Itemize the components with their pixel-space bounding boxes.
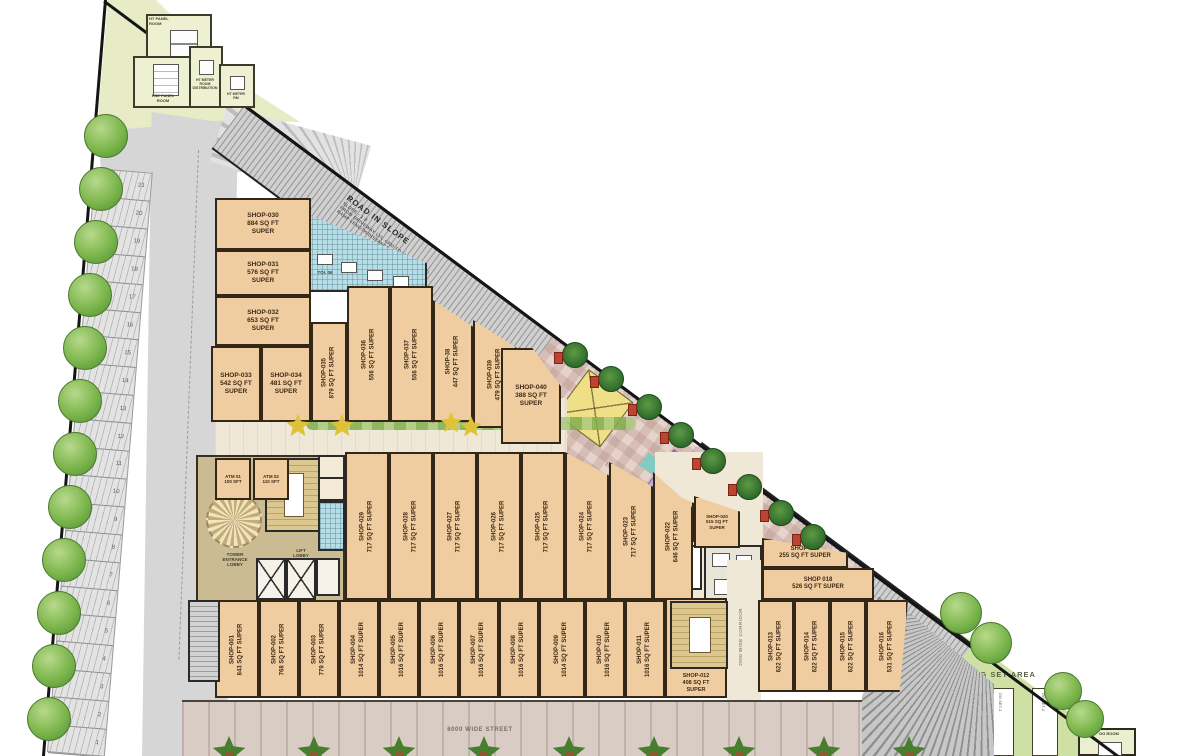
shop-003: SHOP-003779 SQ FT SUPER: [299, 600, 339, 698]
shop-031-label: SHOP-031576 SQ FTSUPER: [247, 261, 279, 285]
shop-001-label: SHOP-001843 SQ FT SUPER: [230, 623, 245, 675]
plaza-planter: [554, 352, 563, 364]
utility-room-2-label: HSE PANEL ROOM: [143, 94, 183, 103]
shop-013: SHOP-013622 SQ FT SUPER: [758, 600, 794, 692]
parking-stall-number: 9: [114, 517, 118, 523]
parking-stall-number: 16: [126, 322, 133, 329]
shaft-rooms: [318, 455, 345, 501]
dg-set-1-label: DG SET-1: [998, 693, 1003, 711]
tree-right: [970, 622, 1012, 664]
palm-pot: [565, 752, 573, 756]
palm-pot: [225, 752, 233, 756]
shop-030-label: SHOP-030884 SQ FTSUPER: [247, 212, 279, 236]
shop-036: SHOP-036556 SQ FT SUPER: [347, 286, 390, 422]
parking-stall-number: 19: [133, 239, 140, 246]
parking-stall-number: 21: [138, 183, 145, 190]
parking-stall-number: 14: [122, 378, 129, 385]
plaza-tree: [800, 524, 826, 550]
shop-002-label: SHOP-002768 SQ FT SUPER: [272, 623, 287, 675]
shop-012-stair: [670, 601, 728, 669]
parking-stall-number: 2: [98, 712, 102, 718]
shop-014-label: SHOP-014622 SQ FT SUPER: [805, 620, 820, 672]
plaza-planter: [590, 376, 599, 388]
shop-037: SHOP-037556 SQ FT SUPER: [390, 286, 433, 422]
shop-022-label: SHOP-022646 SQ FT SUPER: [666, 510, 681, 562]
shop-024-label: SHOP-024717 SQ FT SUPER: [580, 500, 595, 552]
parking-stall-number: 20: [135, 211, 142, 218]
shop-032: SHOP-032653 SQ FTSUPER: [215, 296, 311, 346]
plaza-planter: [728, 484, 737, 496]
shop-016-label: SHOP-016531 SQ FT SUPER: [880, 620, 895, 672]
parking-stall-number: 11: [115, 461, 122, 467]
shop-029: SHOP-029717 SQ FT SUPER: [345, 452, 389, 600]
shop-031: SHOP-031576 SQ FTSUPER: [215, 250, 311, 296]
shop-038-label: SHOP-38447 SQ FT SUPER: [446, 335, 461, 387]
utility-room-2: HSE PANEL ROOM: [133, 56, 193, 108]
shop-008: SHOP-0081016 SQ FT SUPER: [499, 600, 539, 698]
palm-pot: [480, 752, 488, 756]
shop-025-label: SHOP-025717 SQ FT SUPER: [536, 500, 551, 552]
lift-1: [256, 558, 286, 600]
shop-030: SHOP-030884 SQ FTSUPER: [215, 198, 311, 250]
utility-room-4: HT METER RM: [219, 64, 255, 108]
plaza-tree: [700, 448, 726, 474]
shop-018: SHOP 018526 SQ FT SUPER: [762, 568, 874, 600]
atm-2-label: ATM 02110 SFT: [262, 474, 279, 484]
shop-032-label: SHOP-032653 SQ FTSUPER: [247, 309, 279, 333]
shop-027-label: SHOP-027717 SQ FT SUPER: [448, 500, 463, 552]
atm-2: ATM 02110 SFT: [253, 458, 289, 500]
parking-stall-number: 5: [104, 628, 108, 634]
palm-pot: [650, 752, 658, 756]
plaza-tree: [668, 422, 694, 448]
shop-004: SHOP-0041014 SQ FT SUPER: [339, 600, 379, 698]
tree-left: [37, 591, 81, 635]
parking-stall-number: 6: [107, 600, 111, 606]
parking-stall-number: 8: [111, 545, 115, 551]
shop-014: SHOP-014622 SQ FT SUPER: [794, 600, 830, 692]
shop-002: SHOP-002768 SQ FT SUPER: [259, 600, 299, 698]
shop-026-label: SHOP-026717 SQ FT SUPER: [492, 500, 507, 552]
shop-011: SHOP-0111016 SQ FT SUPER: [625, 600, 665, 698]
parking-stall-number: 18: [131, 266, 138, 273]
utility-room-1-label: HT PANEL ROOM: [149, 17, 189, 26]
shop-037-label: SHOP-037556 SQ FT SUPER: [404, 328, 419, 380]
shop-005-label: SHOP-0051016 SQ FT SUPER: [392, 621, 407, 676]
shop-034-label: SHOP-034481 SQ FTSUPER: [270, 372, 302, 396]
shop-035: SHOP-035879 SQ FT SUPER: [311, 322, 347, 422]
plaza-planter: [660, 432, 669, 444]
plaza-planter: [692, 458, 701, 470]
tree-left: [79, 167, 123, 211]
plaza-tree: [636, 394, 662, 420]
shop-033: SHOP-033542 SQ FTSUPER: [211, 346, 261, 422]
utility-room-3-label: HT METER ROOM DISTRIBUTION: [191, 78, 219, 90]
shop-015-label: SHOP-015622 SQ FT SUPER: [841, 620, 856, 672]
plaza-planter: [628, 404, 637, 416]
shop-003-label: SHOP-003779 SQ FT SUPER: [312, 623, 327, 675]
atm-1: ATM 01100 SFT: [215, 458, 251, 500]
shop-036-label: SHOP-036556 SQ FT SUPER: [361, 328, 376, 380]
palm-pot: [905, 752, 913, 756]
tree-left: [58, 379, 102, 423]
parking-stall-number: 17: [129, 294, 136, 301]
tree-right: [1066, 700, 1104, 738]
shop-028-label: SHOP-028717 SQ FT SUPER: [404, 500, 419, 552]
tree-left: [27, 697, 71, 741]
shop-012-label: SHOP-012408 SQ FTSUPER: [683, 673, 710, 694]
tree-left: [53, 432, 97, 476]
shop-010: SHOP-0101016 SQ FT SUPER: [585, 600, 625, 698]
utility-room-4-label: HT METER RM: [223, 92, 249, 100]
parking-stall-number: 13: [119, 406, 126, 413]
shop-009: SHOP-0091014 SQ FT SUPER: [539, 600, 585, 698]
shop-018-label: SHOP 018526 SQ FT SUPER: [792, 577, 844, 592]
plaza-planter: [760, 510, 769, 522]
shop-009-label: SHOP-0091014 SQ FT SUPER: [555, 621, 570, 676]
plaza-tree: [598, 366, 624, 392]
tree-left: [74, 220, 118, 264]
tree-left: [48, 485, 92, 529]
shop-025: SHOP-025717 SQ FT SUPER: [521, 452, 565, 600]
plaza-tree: [768, 500, 794, 526]
palm-pot: [310, 752, 318, 756]
parking-stall-number: 15: [124, 350, 131, 357]
shop-020-label: SHOP-020515 SQ FTSUPER: [706, 514, 728, 530]
escalator: [188, 600, 220, 682]
shop-040-label: SHOP-040388 SQ FTSUPER: [515, 384, 547, 408]
palm-pot: [820, 752, 828, 756]
lift-2: [286, 558, 316, 600]
shop-008-label: SHOP-0081016 SQ FT SUPER: [512, 621, 527, 676]
shop-004-label: SHOP-0041014 SQ FT SUPER: [352, 621, 367, 676]
tree-left: [32, 644, 76, 688]
tree-left: [63, 326, 107, 370]
shop-011-label: SHOP-0111016 SQ FT SUPER: [638, 621, 653, 676]
shop-023-label: SHOP-023717 SQ FT SUPER: [624, 505, 639, 557]
plaza-tree: [736, 474, 762, 500]
shop-013-label: SHOP-013622 SQ FT SUPER: [769, 620, 784, 672]
shop-001: SHOP-001843 SQ FT SUPER: [215, 600, 259, 698]
shop-027: SHOP-027717 SQ FT SUPER: [433, 452, 477, 600]
parking-stall-number: 12: [117, 433, 124, 440]
parking-stall-number: 10: [113, 489, 120, 496]
shop-039-label: SHOP-039479 SQ FT SUPER: [488, 348, 503, 400]
lift-lobby-label: LIFT LOBBY: [284, 548, 318, 558]
floor-plan: 6000 WIDE STREET DG SET AREA DG SET-1 DG…: [0, 0, 1200, 756]
shop-006-label: SHOP-0061016 SQ FT SUPER: [432, 621, 447, 676]
shop-010-label: SHOP-0101016 SQ FT SUPER: [598, 621, 613, 676]
shop-006: SHOP-0061016 SQ FT SUPER: [419, 600, 459, 698]
palm-pot: [395, 752, 403, 756]
shop-015: SHOP-015622 SQ FT SUPER: [830, 600, 866, 692]
bottom-street-label: 6000 WIDE STREET: [420, 727, 540, 735]
parking-stall-number: 7: [109, 573, 113, 579]
shop-035-label: SHOP-035879 SQ FT SUPER: [322, 346, 337, 398]
shop-007: SHOP-0071016 SQ FT SUPER: [459, 600, 499, 698]
shop-024: SHOP-024717 SQ FT SUPER: [565, 452, 609, 600]
corridor-2500-label: 2500 WIDE CORRIDOR: [738, 608, 743, 666]
shop-026: SHOP-026717 SQ FT SUPER: [477, 452, 521, 600]
shop-005: SHOP-0051016 SQ FT SUPER: [379, 600, 419, 698]
atm-1-label: ATM 01100 SFT: [224, 474, 241, 484]
shop-033-label: SHOP-033542 SQ FTSUPER: [220, 372, 252, 396]
toilet-label: TOI. 06: [310, 270, 340, 275]
shop-034: SHOP-034481 SQ FTSUPER: [261, 346, 311, 422]
utility-room-3: HT METER ROOM DISTRIBUTION: [189, 46, 223, 108]
plaza-tree: [562, 342, 588, 368]
parking-stall-number: 1: [95, 740, 99, 746]
palm-pot: [735, 752, 743, 756]
toilet-small: [318, 501, 345, 551]
shop-028: SHOP-028717 SQ FT SUPER: [389, 452, 433, 600]
parking-stall-number: 3: [100, 684, 104, 690]
tree-left: [84, 114, 128, 158]
lobby-mandala: [206, 492, 262, 548]
shop-007-label: SHOP-0071016 SQ FT SUPER: [472, 621, 487, 676]
shop-029-label: SHOP-029717 SQ FT SUPER: [360, 500, 375, 552]
parking-stall-number: 4: [102, 656, 106, 662]
corridor-2500: [727, 560, 761, 700]
plaza-planter: [792, 534, 801, 546]
service-shaft: [316, 558, 340, 596]
